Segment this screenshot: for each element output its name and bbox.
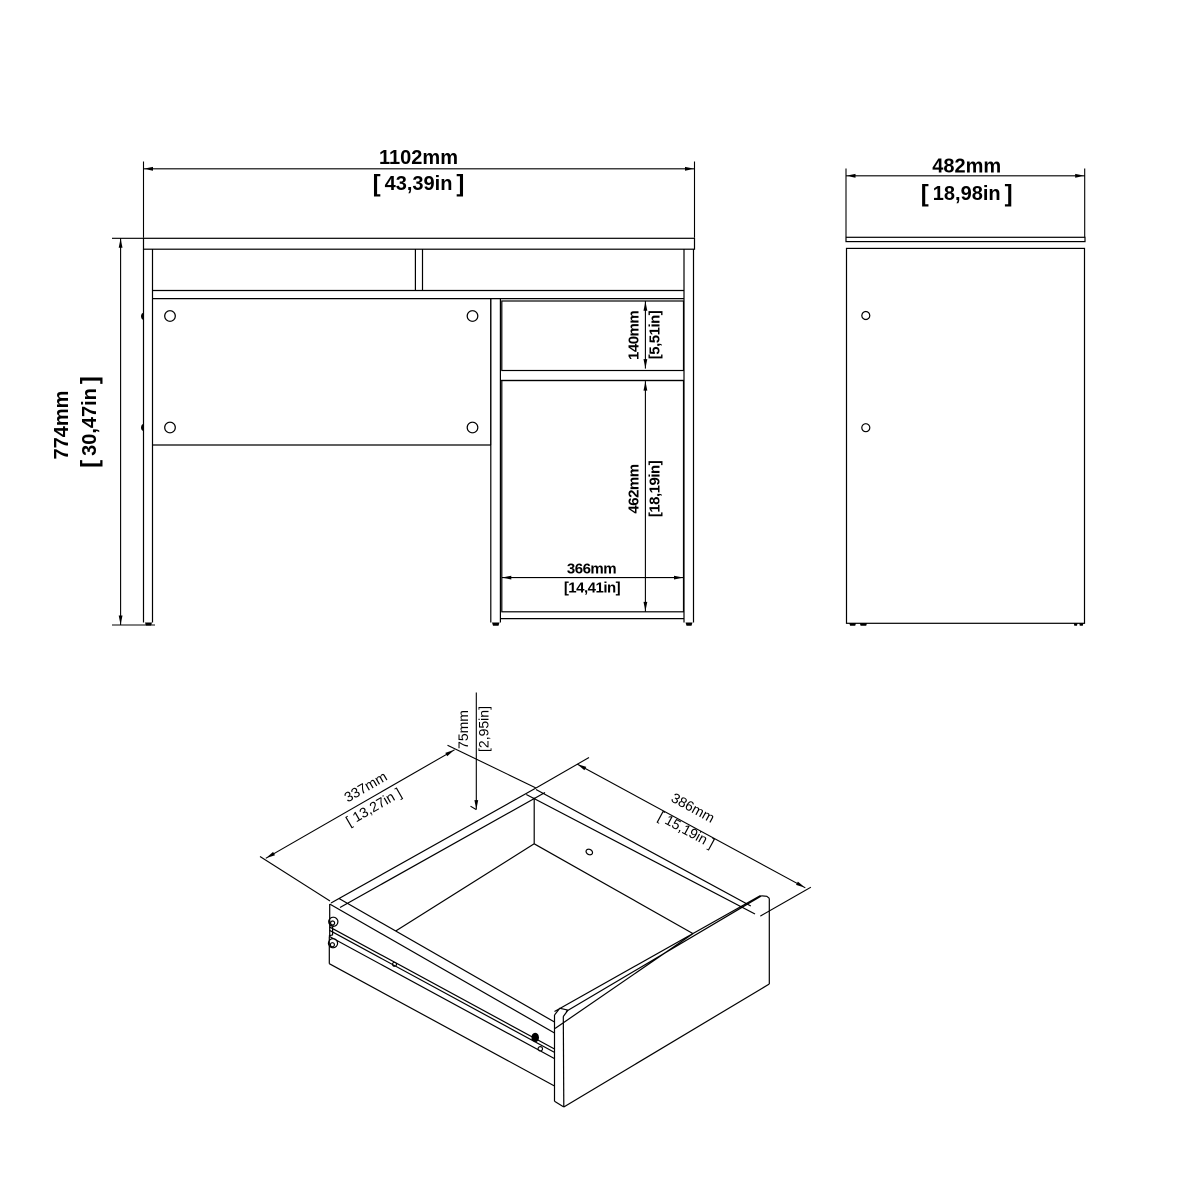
svg-text:366mm: 366mm [567,561,616,578]
svg-text:[2,95in]: [2,95in] [476,706,492,752]
svg-text:[ 43,39in ]: [ 43,39in ] [373,171,465,198]
svg-text:462mm: 462mm [626,464,643,513]
svg-text:[ 30,47in ]: [ 30,47in ] [77,376,104,468]
svg-text:[14,41in]: [14,41in] [564,580,621,597]
svg-text:482mm: 482mm [932,156,1001,178]
svg-text:1102mm: 1102mm [379,147,458,169]
svg-text:774mm: 774mm [51,391,73,460]
svg-text:[ 18,98in ]: [ 18,98in ] [921,181,1013,208]
svg-text:[5,51in]: [5,51in] [647,310,664,359]
svg-text:75mm: 75mm [455,710,471,749]
svg-text:140mm: 140mm [626,311,643,360]
svg-text:[18,19in]: [18,19in] [647,460,664,517]
